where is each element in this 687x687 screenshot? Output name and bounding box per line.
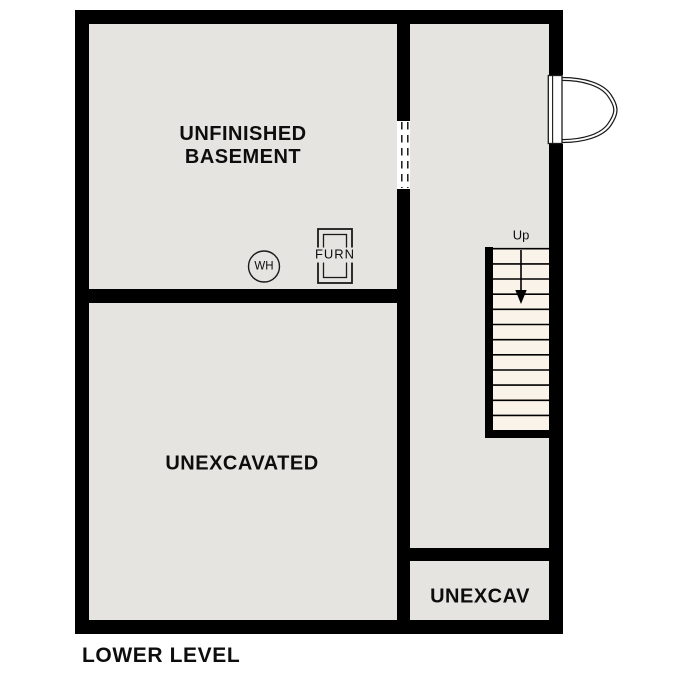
stair-wall-left [485, 247, 493, 437]
room-label-unfinished-basement: UNFINISHED BASEMENT [179, 123, 306, 169]
stair-wall-bottom [485, 430, 549, 438]
wall-top [75, 10, 563, 24]
wall-right-above-door [549, 10, 563, 75]
wall-basement-divider [89, 289, 410, 303]
wall-right-below-door [549, 144, 563, 634]
exterior-door-icon [548, 76, 617, 144]
floor-plan: UNFINISHED BASEMENT UNEXCAVATED UNEXCAV … [0, 0, 687, 687]
floor-plan-drawing [0, 0, 687, 687]
room-label-unexcavated: UNEXCAVATED [165, 453, 318, 476]
room-label-unexcav: UNEXCAV [430, 586, 530, 609]
door-slab [548, 76, 562, 144]
room-floors [89, 23, 549, 620]
door-swing-outer-arc [562, 78, 617, 143]
wall-corridor-lower [397, 189, 410, 634]
plan-title: LOWER LEVEL [82, 644, 240, 668]
wall-corridor-upper [397, 10, 410, 121]
water-heater-label: WH [254, 260, 273, 273]
wall-bottom [75, 620, 563, 634]
staircase [485, 247, 549, 438]
wall-unexcav-divider [410, 548, 549, 561]
opening-dashed-lines [402, 122, 408, 188]
wall-left [75, 10, 89, 634]
stairs-up-label: Up [513, 229, 530, 244]
furnace-label: FURN [313, 248, 357, 263]
